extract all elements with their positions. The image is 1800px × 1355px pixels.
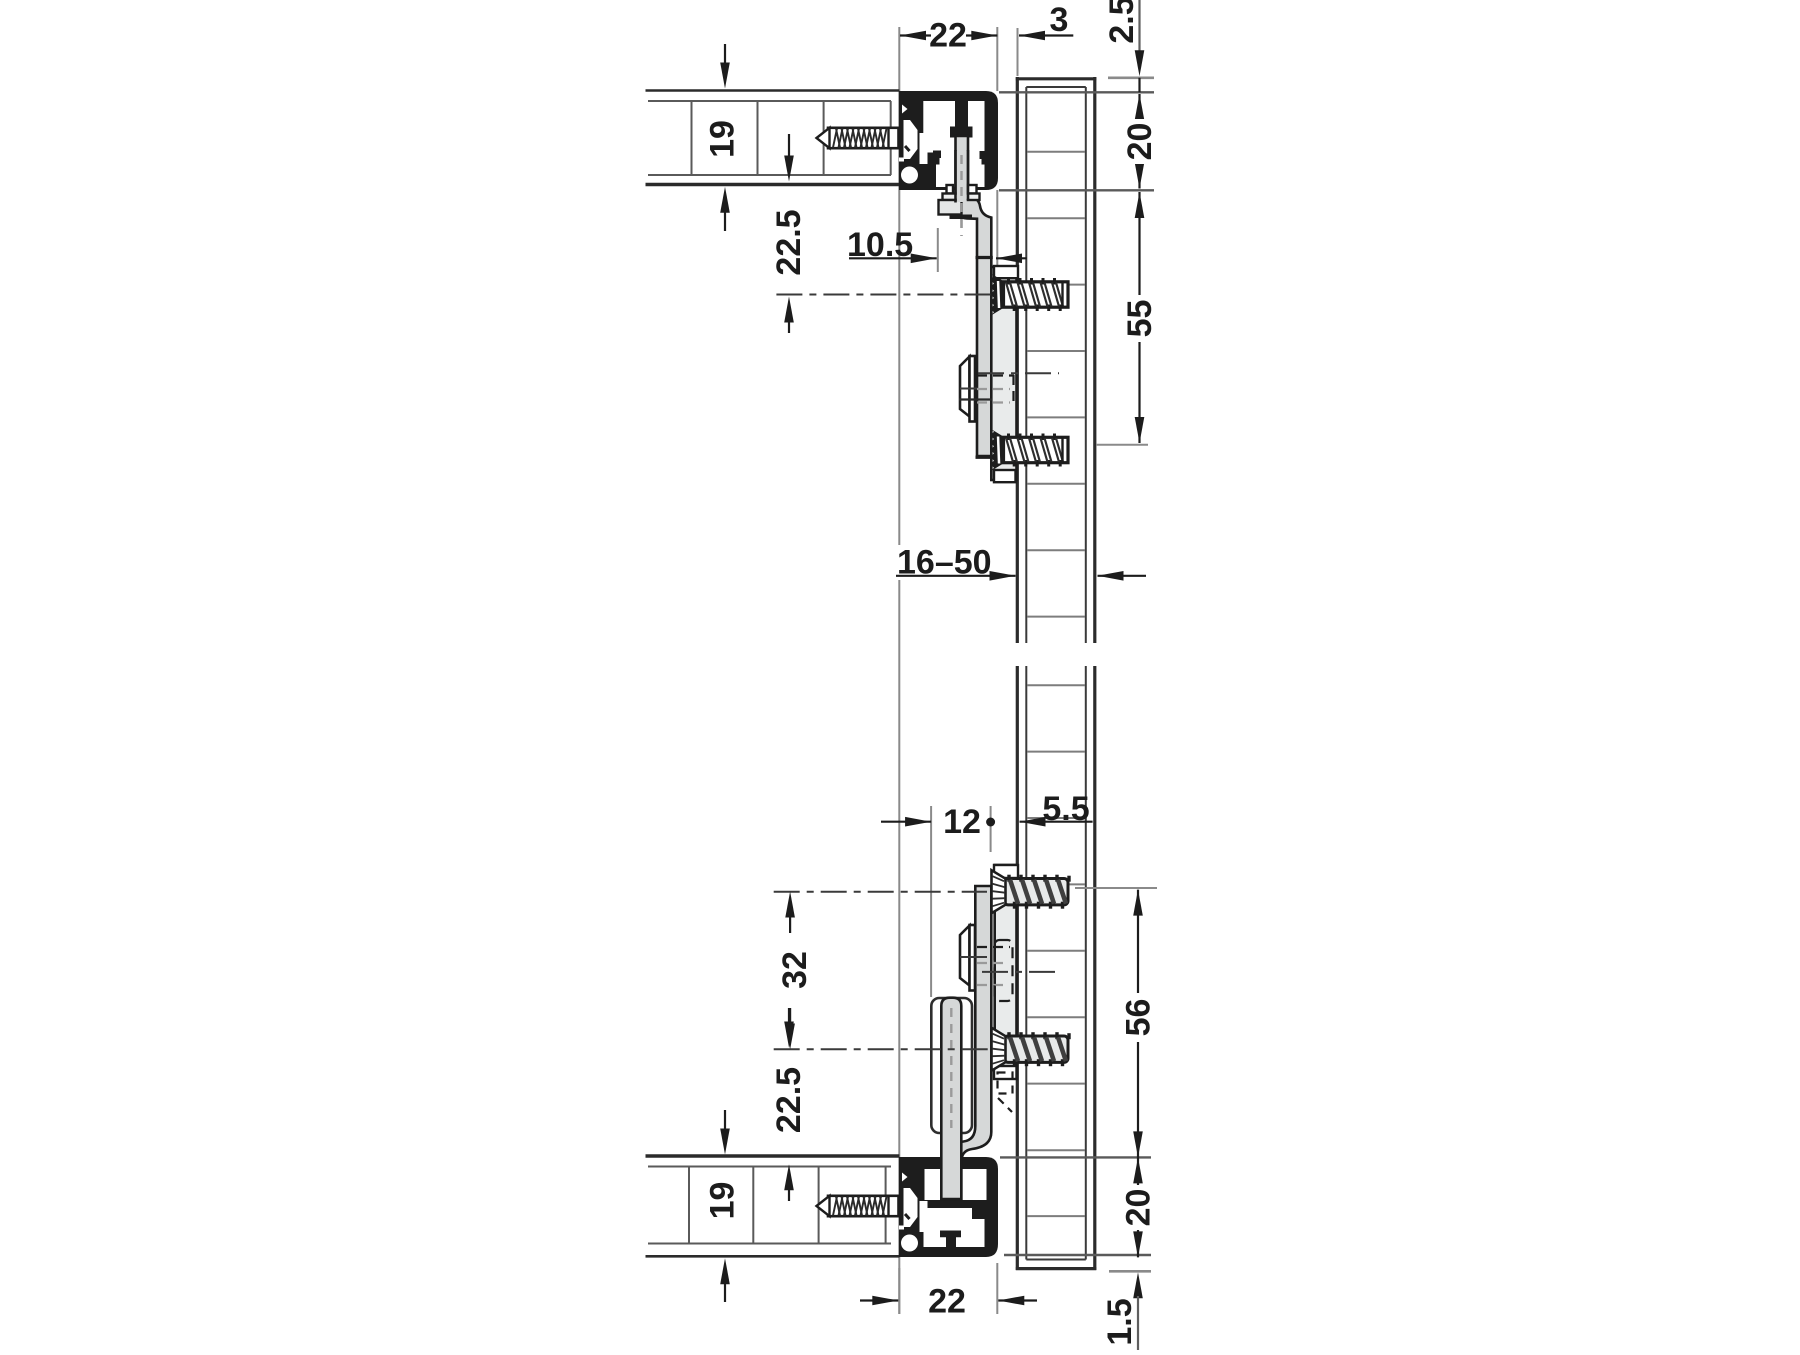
svg-text:10.5: 10.5 (847, 226, 913, 264)
svg-text:22: 22 (929, 17, 967, 55)
svg-text:22.5: 22.5 (770, 1067, 808, 1133)
svg-text:1.5: 1.5 (1101, 1298, 1139, 1345)
svg-text:2.5: 2.5 (1103, 0, 1141, 44)
svg-text:5.5: 5.5 (1042, 790, 1089, 828)
svg-text:22: 22 (928, 1283, 966, 1321)
svg-text:32: 32 (776, 951, 814, 989)
svg-text:56: 56 (1120, 999, 1158, 1037)
svg-text:12: 12 (943, 803, 981, 841)
svg-text:19: 19 (704, 1182, 742, 1220)
svg-text:16–50: 16–50 (897, 544, 992, 582)
svg-text:19: 19 (704, 120, 742, 158)
svg-text:20: 20 (1120, 1189, 1158, 1227)
svg-text:22.5: 22.5 (770, 209, 808, 275)
svg-text:3: 3 (1050, 1, 1069, 39)
svg-text:55: 55 (1121, 300, 1159, 338)
svg-text:20: 20 (1121, 123, 1159, 161)
